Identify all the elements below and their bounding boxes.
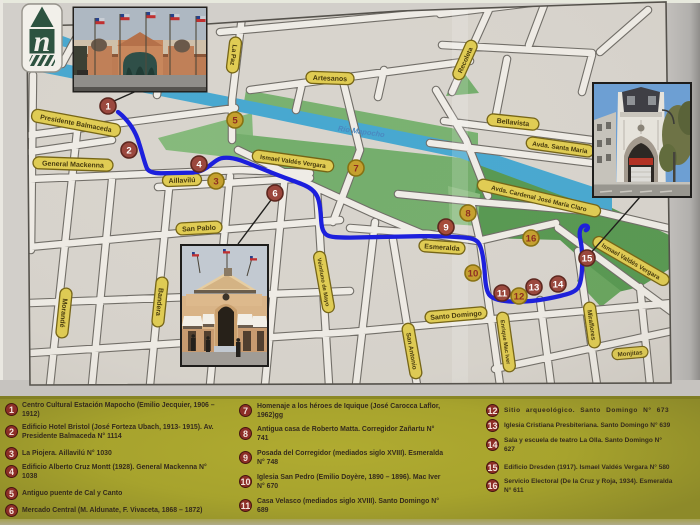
svg-text:n: n xyxy=(34,25,51,58)
